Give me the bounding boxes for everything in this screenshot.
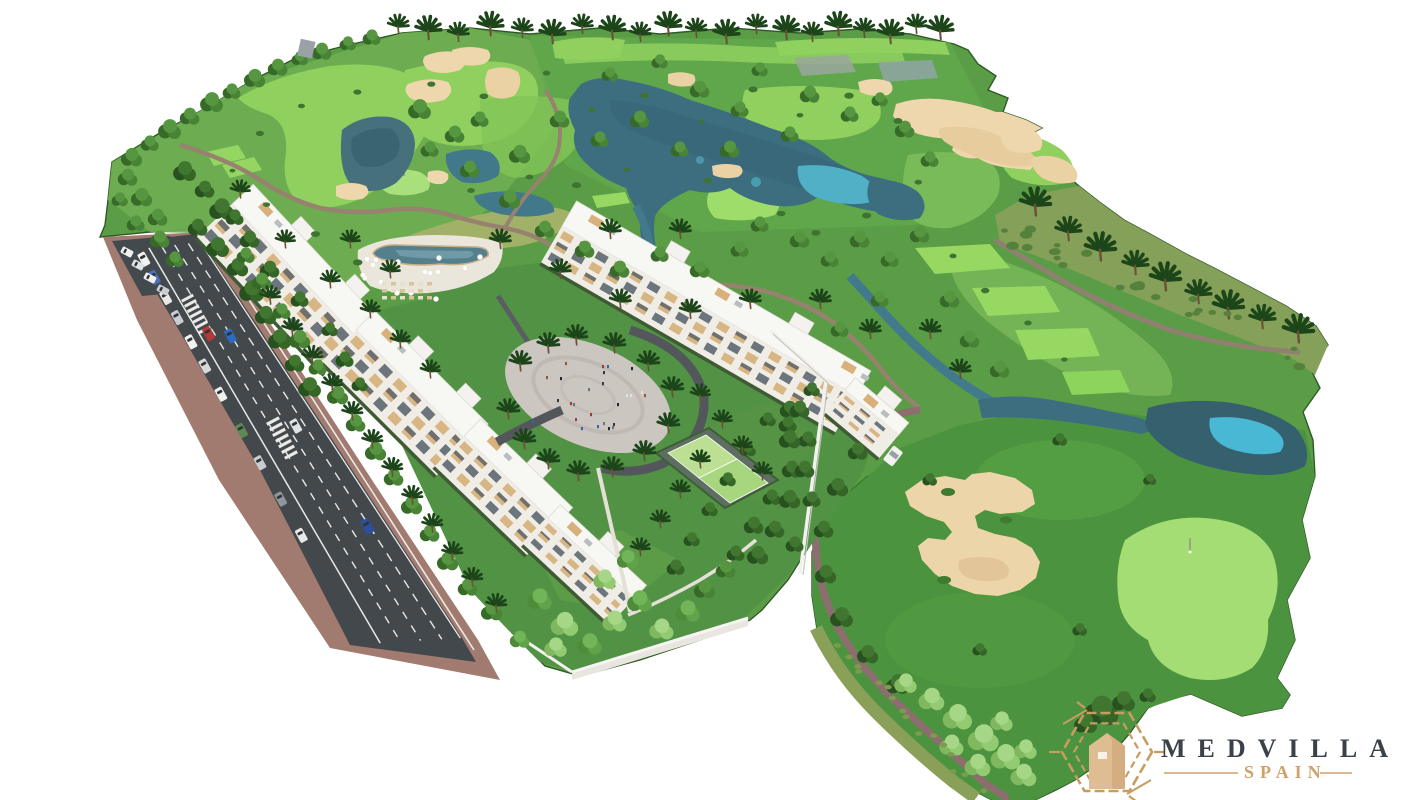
svg-text:MEDVILLA: MEDVILLA xyxy=(1161,734,1400,763)
svg-text:SPAIN: SPAIN xyxy=(1244,762,1327,782)
